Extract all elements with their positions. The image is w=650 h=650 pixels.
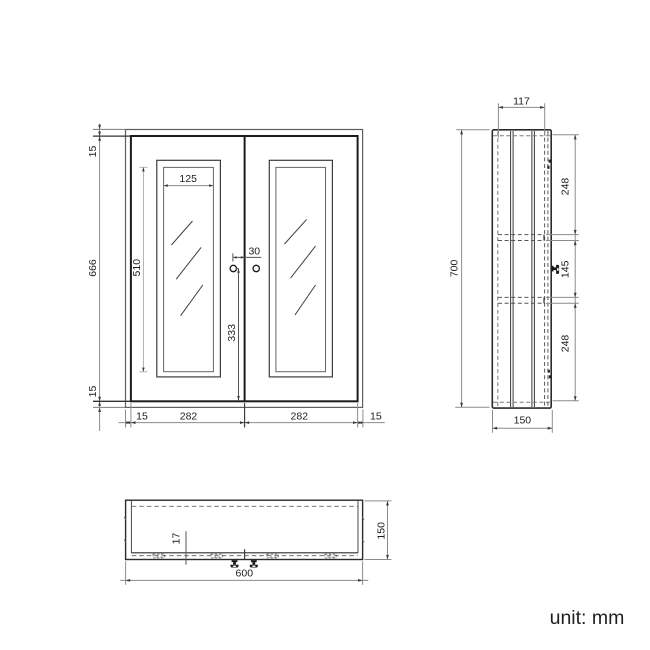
svg-text:30: 30 (248, 246, 260, 258)
svg-text:282: 282 (180, 410, 198, 422)
svg-text:510: 510 (131, 259, 143, 277)
svg-text:145: 145 (560, 260, 572, 278)
svg-text:150: 150 (514, 414, 532, 426)
svg-text:600: 600 (236, 568, 254, 580)
svg-text:17: 17 (171, 533, 183, 545)
svg-text:117: 117 (513, 95, 530, 107)
svg-text:125: 125 (179, 173, 197, 185)
svg-text:666: 666 (87, 259, 99, 277)
svg-text:15: 15 (87, 146, 99, 158)
svg-text:15: 15 (370, 410, 382, 422)
svg-text:15: 15 (87, 386, 99, 398)
svg-text:700: 700 (448, 259, 460, 277)
svg-text:248: 248 (560, 178, 572, 196)
svg-text:248: 248 (560, 335, 572, 353)
svg-text:282: 282 (291, 410, 309, 422)
svg-text:15: 15 (136, 410, 148, 422)
svg-text:150: 150 (376, 522, 388, 540)
svg-text:333: 333 (226, 324, 238, 342)
svg-text:unit: mm: unit: mm (550, 607, 625, 629)
